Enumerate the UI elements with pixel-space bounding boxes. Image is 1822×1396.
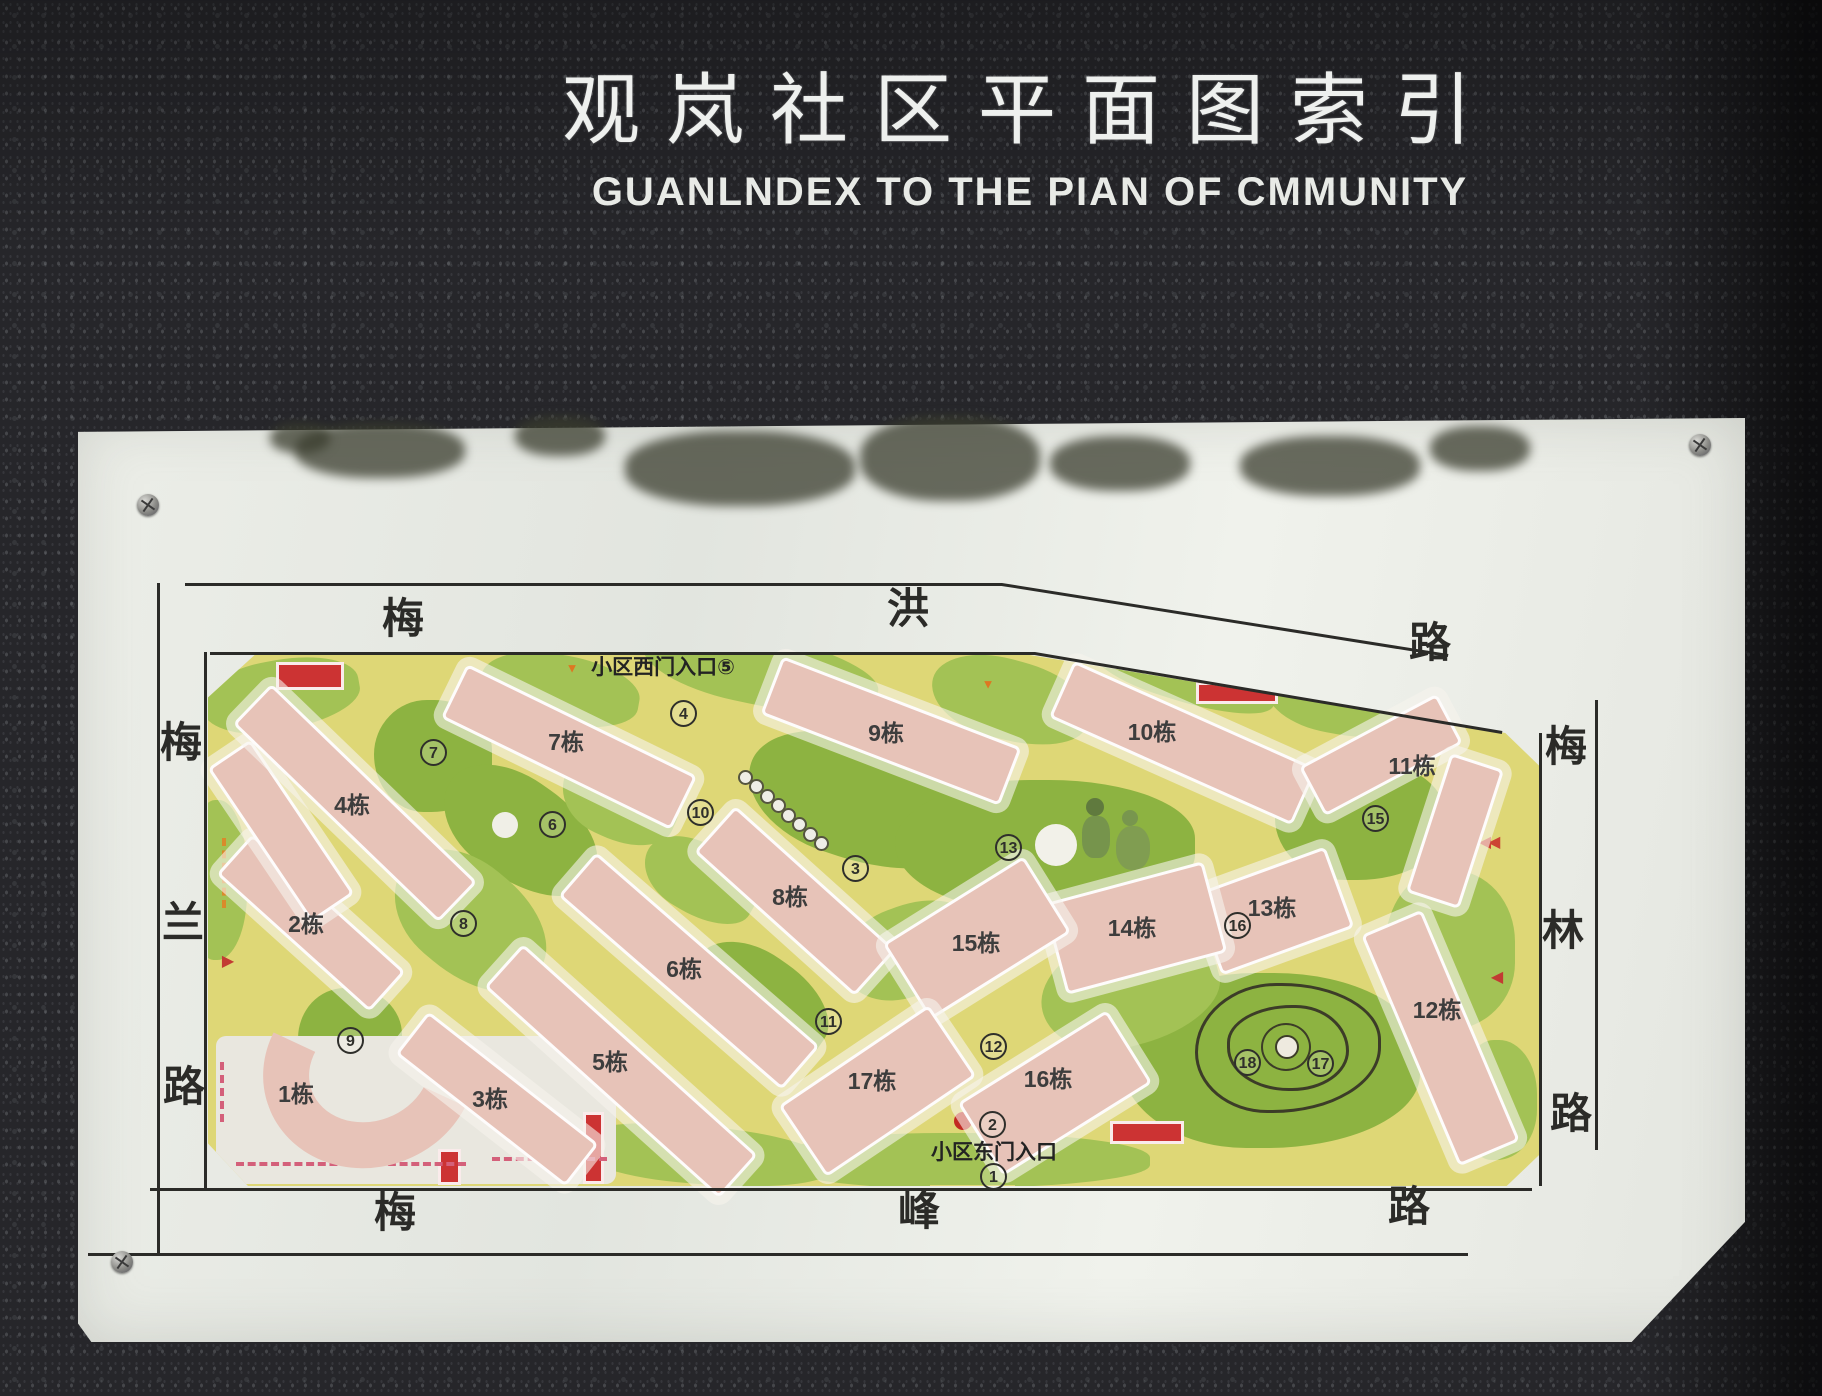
direction-arrow-icon: ▶ bbox=[222, 954, 234, 970]
building-label: 2栋 bbox=[288, 905, 324, 939]
map-point-marker: 1 bbox=[980, 1163, 1007, 1190]
children-illustration-head1 bbox=[1086, 798, 1104, 816]
small-plaza-circle bbox=[492, 812, 518, 838]
road-edge-line bbox=[210, 652, 1035, 655]
dirt-stain bbox=[270, 423, 330, 453]
mounting-screw bbox=[137, 494, 159, 516]
trail-dot bbox=[814, 836, 829, 851]
map-point-marker: 10 bbox=[687, 799, 714, 826]
road-name-bottom: 路 bbox=[1386, 1184, 1432, 1230]
map-point-marker: 2 bbox=[979, 1111, 1006, 1138]
road-edge-line bbox=[150, 1188, 1532, 1191]
map-point-marker: 6 bbox=[539, 811, 566, 838]
west-gate-label: 小区西门入口⑤ bbox=[591, 651, 735, 681]
building-label: 14栋 bbox=[1108, 909, 1157, 943]
building-label: 10栋 bbox=[1128, 713, 1177, 747]
map-point-marker: 7 bbox=[420, 739, 447, 766]
road-name-bottom: 峰 bbox=[896, 1188, 942, 1234]
children-illustration-body1 bbox=[1082, 816, 1110, 858]
road-name-top: 洪 bbox=[885, 586, 931, 632]
road-edge-line bbox=[88, 1253, 1468, 1256]
building-label: 9栋 bbox=[868, 714, 904, 748]
mounting-screw bbox=[111, 1251, 133, 1273]
dashed-boundary bbox=[220, 1062, 224, 1122]
direction-arrow-icon: ▼ bbox=[566, 662, 579, 675]
building-label: 4栋 bbox=[334, 786, 370, 820]
sign-title-chinese: 观岚社区平面图索引 bbox=[555, 48, 1505, 160]
map-point-marker: 15 bbox=[1362, 805, 1389, 832]
map-point-marker: 4 bbox=[670, 700, 697, 727]
red-structure bbox=[1110, 1121, 1184, 1144]
dirt-stain bbox=[860, 416, 1040, 501]
road-edge-line bbox=[1595, 700, 1598, 1150]
red-structure bbox=[438, 1149, 461, 1185]
photo-of-community-map-sign: 观岚社区平面图索引 GUANLNDEX TO THE PIAN OF CMMUN… bbox=[0, 0, 1822, 1396]
building-label: 13栋 bbox=[1248, 889, 1297, 923]
dirt-stain bbox=[1240, 436, 1420, 496]
pond bbox=[1035, 824, 1077, 866]
map-point-marker: 3 bbox=[842, 855, 869, 882]
building-label: 16栋 bbox=[1024, 1060, 1073, 1094]
dirt-stain bbox=[625, 431, 855, 506]
direction-arrow-icon: ◀ bbox=[1491, 970, 1503, 986]
building-label: 17栋 bbox=[848, 1062, 897, 1096]
mounting-screw bbox=[1689, 434, 1711, 456]
east-gate-label: 小区东门入口 bbox=[931, 1136, 1057, 1166]
road-name-right: 林 bbox=[1540, 908, 1586, 954]
road-name-left: 路 bbox=[161, 1064, 207, 1110]
building-label: 7栋 bbox=[548, 723, 584, 757]
map-point-marker: 12 bbox=[980, 1033, 1007, 1060]
road-name-bottom: 梅 bbox=[372, 1190, 418, 1236]
map-point-marker: 8 bbox=[450, 910, 477, 937]
direction-arrow-icon: ▼ bbox=[982, 678, 995, 691]
sign-title-english: GUANLNDEX TO THE PIAN OF CMMUNITY bbox=[555, 170, 1505, 215]
map-point-marker: 18 bbox=[1234, 1049, 1261, 1076]
road-name-left: 兰 bbox=[160, 900, 206, 946]
road-name-right: 梅 bbox=[1543, 724, 1589, 770]
building-label: 12栋 bbox=[1413, 991, 1462, 1025]
dirt-stain bbox=[1050, 436, 1190, 491]
map-point-marker: 16 bbox=[1224, 912, 1251, 939]
building-label: 3栋 bbox=[472, 1080, 508, 1114]
dirt-stain bbox=[1430, 426, 1530, 471]
road-name-top: 梅 bbox=[380, 596, 426, 642]
map-point-marker: 9 bbox=[337, 1027, 364, 1054]
map-point-marker: 17 bbox=[1307, 1050, 1334, 1077]
road-name-right: 路 bbox=[1548, 1091, 1594, 1137]
building-label: 8栋 bbox=[772, 878, 808, 912]
building-label: 1栋 bbox=[278, 1075, 314, 1109]
children-illustration-head2 bbox=[1122, 810, 1138, 826]
building-label: 15栋 bbox=[952, 924, 1001, 958]
red-structure bbox=[276, 662, 344, 690]
map-point-marker: 11 bbox=[815, 1008, 842, 1035]
children-illustration-body2 bbox=[1116, 826, 1150, 870]
road-edge-line bbox=[1539, 733, 1542, 1186]
road-name-top: 路 bbox=[1407, 620, 1453, 666]
road-edge-line bbox=[185, 583, 1002, 586]
building-label: 11栋 bbox=[1388, 747, 1435, 781]
road-name-left: 梅 bbox=[158, 720, 204, 766]
building-label: 6栋 bbox=[666, 950, 702, 984]
dirt-stain bbox=[515, 416, 605, 456]
hill-contour-core bbox=[1275, 1035, 1299, 1059]
building-label: 5栋 bbox=[592, 1043, 628, 1077]
map-point-marker: 13 bbox=[995, 834, 1022, 861]
